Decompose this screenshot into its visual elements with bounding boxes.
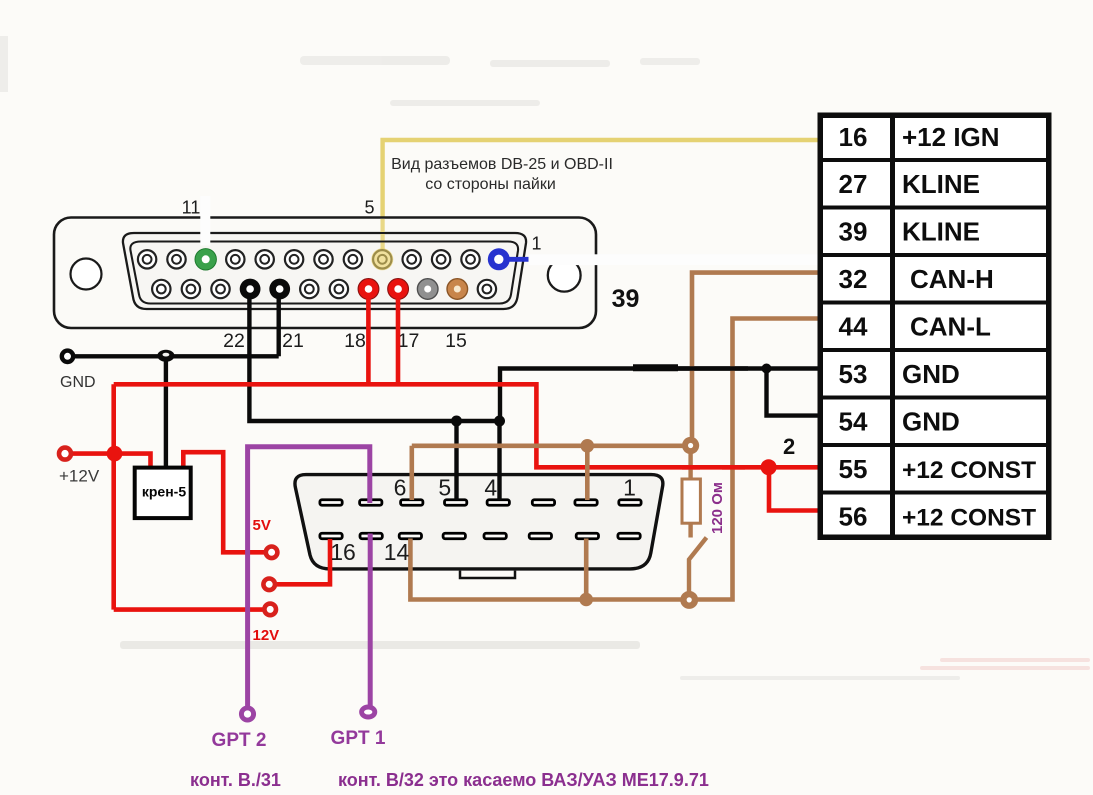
svg-text:Вид разъемов DB-25 и OBD-II: Вид разъемов DB-25 и OBD-II: [391, 156, 613, 173]
svg-text:CAN-H: CAN-H: [910, 264, 994, 294]
svg-text:16: 16: [839, 122, 868, 152]
svg-text:конт. В/32 это касаемо ВАЗ/У: конт. В/32 это касаемо ВАЗ/УАЗ МЕ17.9.71: [338, 770, 709, 790]
svg-text:KLINE: KLINE: [902, 169, 980, 199]
svg-text:14: 14: [384, 539, 410, 565]
svg-text:5: 5: [438, 475, 451, 501]
svg-text:KLINE: KLINE: [902, 217, 980, 247]
svg-text:GND: GND: [902, 407, 960, 437]
svg-text:12V: 12V: [253, 627, 280, 644]
svg-text:CAN-L: CAN-L: [910, 312, 991, 342]
svg-text:4: 4: [484, 475, 497, 501]
svg-text:53: 53: [839, 359, 868, 389]
svg-text:крен-5: крен-5: [142, 484, 186, 500]
svg-text:17: 17: [398, 330, 420, 352]
svg-text:+12 CONST: +12 CONST: [902, 457, 1036, 484]
svg-text:6: 6: [394, 475, 407, 501]
svg-text:GND: GND: [60, 374, 96, 391]
svg-text:1: 1: [623, 475, 636, 501]
svg-text:со стороны пайки: со стороны пайки: [425, 176, 556, 193]
svg-text:39: 39: [612, 285, 640, 313]
svg-text:+12 CONST: +12 CONST: [902, 505, 1036, 532]
svg-text:2: 2: [783, 434, 795, 459]
svg-text:+12 IGN: +12 IGN: [902, 122, 1000, 152]
svg-text:39: 39: [839, 217, 868, 247]
svg-text:22: 22: [223, 330, 245, 352]
svg-text:15: 15: [445, 330, 467, 352]
svg-text:GPT 2: GPT 2: [212, 730, 267, 751]
svg-text:GND: GND: [902, 359, 960, 389]
svg-text:27: 27: [839, 169, 868, 199]
svg-text:5: 5: [364, 198, 374, 218]
svg-text:11: 11: [182, 198, 201, 218]
svg-text:21: 21: [282, 330, 304, 352]
svg-text:55: 55: [839, 454, 868, 484]
svg-text:120 Ом: 120 Ом: [709, 482, 726, 534]
svg-text:56: 56: [839, 502, 868, 532]
svg-text:16: 16: [330, 539, 356, 565]
svg-text:+12V: +12V: [59, 467, 100, 486]
svg-text:GPT 1: GPT 1: [331, 728, 386, 749]
svg-text:54: 54: [839, 407, 868, 437]
svg-text:32: 32: [839, 264, 868, 294]
svg-text:1: 1: [531, 234, 541, 254]
svg-text:44: 44: [839, 312, 868, 342]
svg-text:конт. В./31: конт. В./31: [190, 770, 281, 790]
svg-text:5V: 5V: [253, 517, 271, 534]
svg-text:18: 18: [344, 330, 366, 352]
